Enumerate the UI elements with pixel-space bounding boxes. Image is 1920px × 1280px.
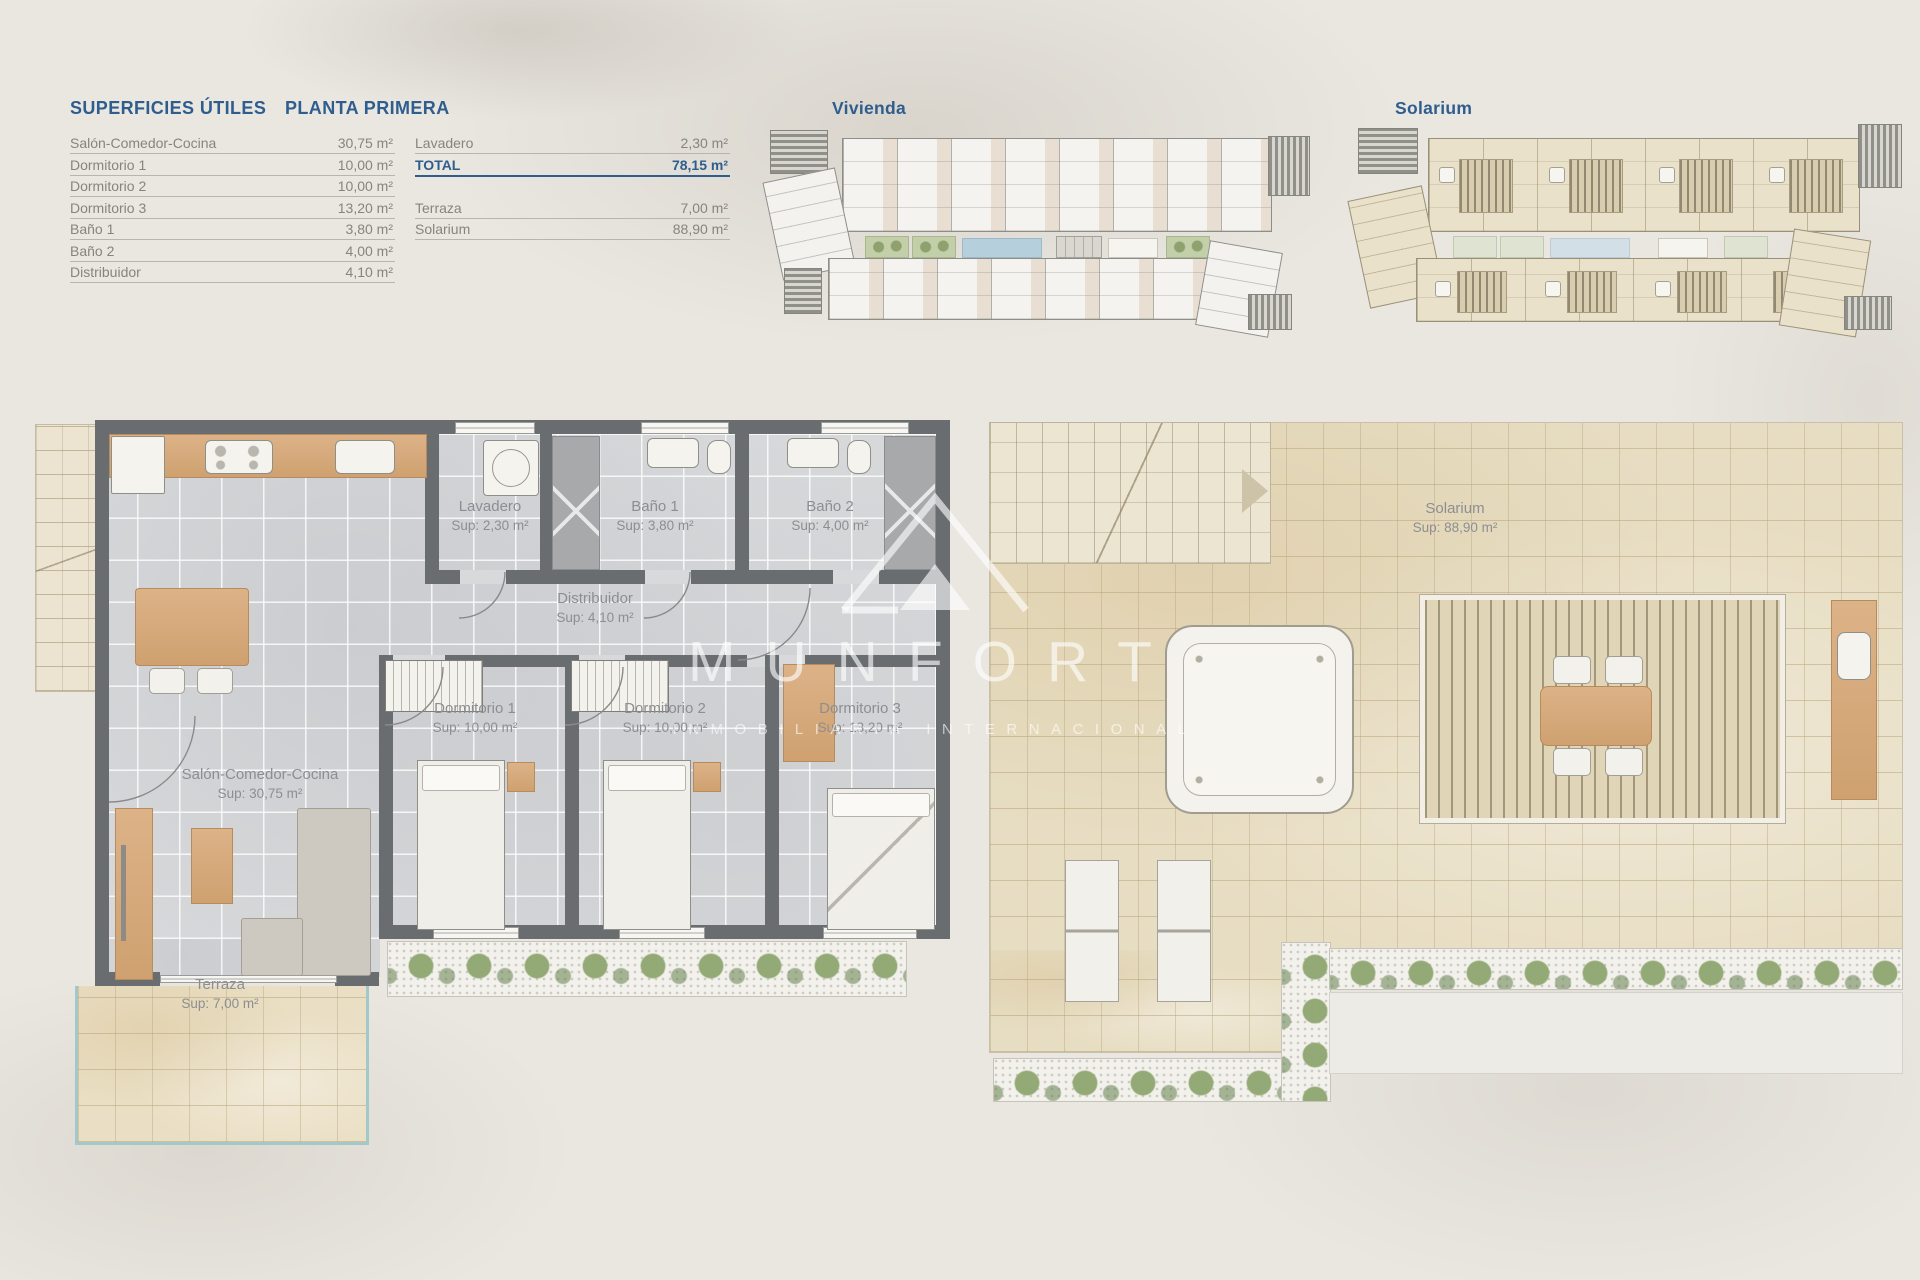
table-row: Dormitorio 210,00 m² (70, 175, 395, 197)
mini-plan-solarium: Solarium (1358, 96, 1903, 330)
pergola (1420, 595, 1785, 823)
roof-stairs (989, 422, 1271, 564)
mini-plan-vivienda: Vivienda (770, 96, 1315, 330)
courtyard-structure (1056, 236, 1102, 258)
courtyard-terrace (1658, 238, 1708, 258)
pergola (1679, 159, 1733, 213)
sun-lounger (1157, 860, 1211, 1002)
outdoor-counter (1831, 600, 1877, 800)
stairs-arrow (1242, 469, 1268, 513)
solarium-floor-plan: Solarium Sup: 88,90 m² (985, 420, 1905, 1110)
jacuzzi (1545, 281, 1561, 297)
room-label-bano1: Baño 1 Sup: 3,80 m² (595, 498, 715, 533)
stair-block (1358, 128, 1418, 174)
planter-strip (993, 1058, 1287, 1102)
room-label-dormitorio2: Dormitorio 2 Sup: 10,00 m² (585, 700, 745, 735)
jacuzzi (1165, 625, 1354, 814)
jacuzzi-basin (1183, 643, 1336, 796)
jacuzzi (1435, 281, 1451, 297)
outdoor-sink (1837, 632, 1871, 680)
table-row: Baño 13,80 m² (70, 218, 395, 240)
table-title-superficies: SUPERFICIES ÚTILES (70, 98, 266, 119)
lower-roof-area (1329, 992, 1903, 1074)
solarium-floor-extension (989, 950, 1287, 1053)
pergola (1569, 159, 1623, 213)
roof-row-bottom (1416, 258, 1838, 322)
stair-block (1858, 124, 1902, 188)
table-row: Lavadero2,30 m² (415, 132, 730, 154)
courtyard-garden (865, 236, 909, 258)
table-row: Dormitorio 313,20 m² (70, 197, 395, 219)
room-label-terraza: Terraza Sup: 7,00 m² (140, 976, 300, 1011)
courtyard-garden (1724, 236, 1768, 258)
courtyard-terrace (1108, 238, 1158, 258)
chair (1605, 656, 1643, 684)
table-row: Distribuidor4,10 m² (70, 261, 395, 283)
stair-block (1268, 136, 1310, 196)
building-row-top (842, 138, 1272, 232)
jacuzzi (1769, 167, 1785, 183)
table-row: Dormitorio 110,00 m² (70, 154, 395, 176)
outdoor-table (1540, 686, 1652, 746)
mini-plan-title: Vivienda (832, 98, 906, 119)
building-row-bottom (828, 258, 1248, 320)
pergola (1459, 159, 1513, 213)
courtyard-garden (1166, 236, 1210, 258)
stair-block (1248, 294, 1292, 330)
pergola (1457, 271, 1507, 313)
table-row-total: TOTAL78,15 m² (415, 154, 730, 177)
courtyard-pool (1550, 238, 1630, 258)
chair (1553, 656, 1591, 684)
apartment-floor-plan: Lavadero Sup: 2,30 m² Baño 1 Sup: 3,80 m… (35, 420, 950, 1150)
planter-strip (1281, 942, 1331, 1102)
table-row: Salón-Comedor-Cocina30,75 m² (70, 132, 395, 154)
jacuzzi (1655, 281, 1671, 297)
table-row: Baño 24,00 m² (70, 240, 395, 262)
room-label-bano2: Baño 2 Sup: 4,00 m² (770, 498, 890, 533)
stair-block (1844, 296, 1892, 330)
courtyard-garden (1500, 236, 1544, 258)
surface-table: SUPERFICIES ÚTILES PLANTA PRIMERA Salón-… (70, 98, 750, 298)
jacuzzi (1549, 167, 1565, 183)
room-label-dormitorio1: Dormitorio 1 Sup: 10,00 m² (395, 700, 555, 735)
room-label-salon: Salón-Comedor-Cocina Sup: 30,75 m² (145, 766, 375, 801)
room-label-lavadero: Lavadero Sup: 2,30 m² (430, 498, 550, 533)
table-title-planta: PLANTA PRIMERA (285, 98, 450, 119)
room-label-distribuidor: Distribuidor Sup: 4,10 m² (515, 590, 675, 625)
courtyard-pool (962, 238, 1042, 258)
courtyard-garden (912, 236, 956, 258)
table-row: Solarium88,90 m² (415, 218, 730, 240)
jacuzzi (1439, 167, 1455, 183)
roof-row-top (1428, 138, 1860, 232)
stair-block (770, 130, 828, 174)
pergola (1789, 159, 1843, 213)
planter-strip (1329, 948, 1903, 990)
room-label-dormitorio3: Dormitorio 3 Sup: 13,20 m² (780, 700, 940, 735)
sun-lounger (1065, 860, 1119, 1002)
mini-plan-title: Solarium (1395, 98, 1472, 119)
chair (1605, 748, 1643, 776)
stair-block (784, 268, 822, 314)
courtyard-garden (1453, 236, 1497, 258)
jacuzzi (1659, 167, 1675, 183)
table-row: Terraza7,00 m² (415, 197, 730, 219)
pergola (1567, 271, 1617, 313)
chair (1553, 748, 1591, 776)
floorplan-sheet: SUPERFICIES ÚTILES PLANTA PRIMERA Salón-… (0, 0, 1920, 1280)
pergola (1677, 271, 1727, 313)
room-label-solarium: Solarium Sup: 88,90 m² (1345, 500, 1565, 535)
